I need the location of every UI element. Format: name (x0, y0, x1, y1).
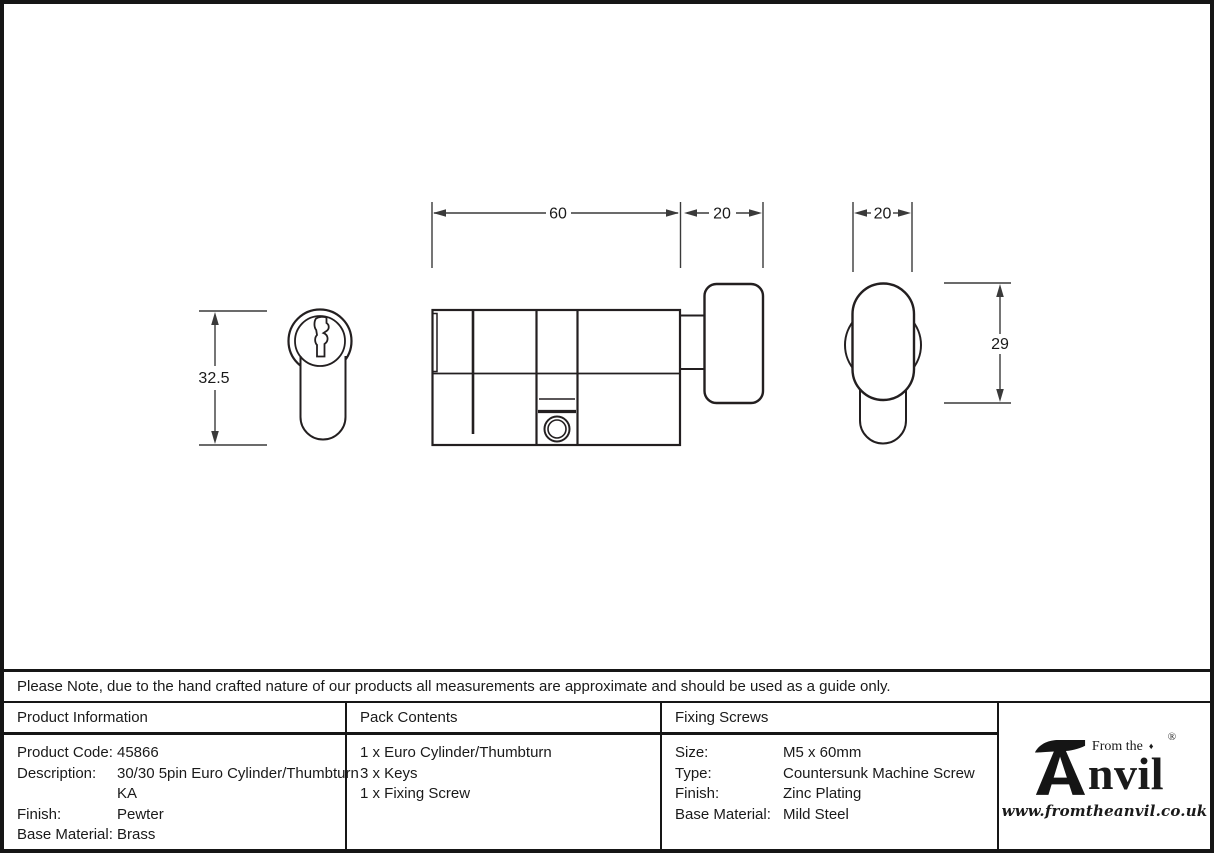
dimension-thumbturn-height: 29 (944, 283, 1011, 403)
dim-cylinder-height-label: 32.5 (198, 370, 229, 387)
fixing-screws-header: Fixing Screws (662, 703, 997, 735)
row-label: Finish: (675, 784, 783, 805)
pack-contents-body: 1 x Euro Cylinder/Thumbturn 3 x Keys 1 x… (347, 735, 660, 805)
table-row: Base Material: Brass (17, 825, 345, 846)
registered-mark: ® (1168, 731, 1176, 743)
row-value: M5 x 60mm (783, 743, 861, 764)
brand-name: nvil (1088, 755, 1164, 792)
end-view-thumbturn (845, 284, 921, 444)
technical-drawing: 60 20 20 32.5 (0, 0, 1214, 669)
row-value: Zinc Plating (783, 784, 861, 805)
brand-logo-cell: ® From the ♦ nvil www.fromtheanvil.co.uk (999, 703, 1210, 849)
row-value: Pewter (117, 805, 164, 826)
product-information-body: Product Code: 45866 Description: 30/30 5… (4, 735, 345, 846)
row-label: Base Material: (17, 825, 117, 846)
anvil-a-icon (1033, 736, 1087, 796)
logo-wordmark: ® From the ♦ nvil (1033, 733, 1176, 796)
row-value: Mild Steel (783, 805, 849, 826)
table-row: Finish: Zinc Plating (675, 784, 997, 805)
row-value: KA (117, 784, 137, 805)
dimension-thumbturn-width: 20 (853, 202, 912, 272)
dim-thumbturn-width-label: 20 (874, 206, 892, 223)
brand-website: www.fromtheanvil.co.uk (1002, 802, 1208, 820)
pack-contents-column: Pack Contents 1 x Euro Cylinder/Thumbtur… (347, 703, 662, 849)
side-view-cylinder-body (433, 284, 764, 445)
row-label: Product Code: (17, 743, 117, 764)
row-label: Finish: (17, 805, 117, 826)
dimension-cylinder-height: 32.5 (198, 311, 267, 445)
from-the-anvil-logo: ® From the ♦ nvil www.fromtheanvil.co.uk (1002, 733, 1208, 820)
row-label: Size: (675, 743, 783, 764)
note-row: Please Note, due to the hand crafted nat… (4, 669, 1210, 703)
thumbturn-knob-end (853, 284, 915, 401)
row-label (17, 784, 117, 805)
info-columns: Product Information Product Code: 45866 … (4, 703, 1210, 849)
list-item: 1 x Euro Cylinder/Thumbturn (360, 743, 660, 764)
table-row: KA (17, 784, 345, 805)
row-value: Countersunk Machine Screw (783, 764, 975, 785)
row-label: Description: (17, 764, 117, 785)
dim-thumbturn-height-label: 29 (991, 336, 1009, 353)
fixing-screws-body: Size: M5 x 60mm Type: Countersunk Machin… (662, 735, 997, 825)
note-text: Please Note, due to the hand crafted nat… (17, 678, 891, 695)
cylinder-face-stem (301, 356, 346, 440)
row-value: 45866 (117, 743, 159, 764)
table-row: Product Code: 45866 (17, 743, 345, 764)
table-row: Description: 30/30 5pin Euro Cylinder/Th… (17, 764, 345, 785)
info-panel: Please Note, due to the hand crafted nat… (4, 669, 1210, 849)
product-information-column: Product Information Product Code: 45866 … (4, 703, 347, 849)
row-value: Brass (117, 825, 155, 846)
pack-contents-header: Pack Contents (347, 703, 660, 735)
product-spec-sheet: 60 20 20 32.5 (0, 0, 1214, 853)
row-value: 30/30 5pin Euro Cylinder/Thumbturn (117, 764, 359, 785)
row-label: Base Material: (675, 805, 783, 826)
thumbturn-knob-side (705, 284, 764, 403)
table-row: Type: Countersunk Machine Screw (675, 764, 997, 785)
dimension-thumbturn-depth: 20 (684, 202, 763, 268)
dimension-cylinder-length: 60 (432, 202, 681, 268)
dim-cylinder-length-label: 60 (549, 206, 567, 223)
list-item: 3 x Keys (360, 764, 660, 785)
dim-thumbturn-depth-label: 20 (713, 206, 731, 223)
cylinder-body (433, 310, 681, 445)
fixing-screws-column: Fixing Screws Size: M5 x 60mm Type: Coun… (662, 703, 999, 849)
front-view-cylinder-face (289, 310, 352, 440)
logo-text-block: ® From the ♦ nvil (1088, 733, 1176, 792)
list-item: 1 x Fixing Screw (360, 784, 660, 805)
product-information-header: Product Information (4, 703, 345, 735)
row-label: Type: (675, 764, 783, 785)
table-row: Base Material: Mild Steel (675, 805, 997, 826)
table-row: Size: M5 x 60mm (675, 743, 997, 764)
table-row: Finish: Pewter (17, 805, 345, 826)
